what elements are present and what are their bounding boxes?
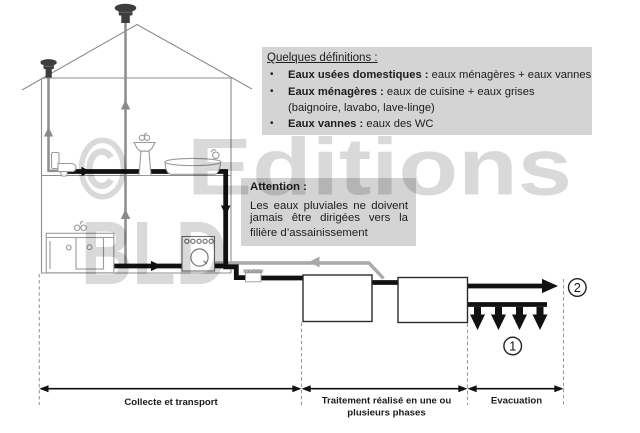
svg-text:Editions: Editions bbox=[187, 123, 572, 213]
svg-text:BLD: BLD bbox=[81, 204, 227, 304]
